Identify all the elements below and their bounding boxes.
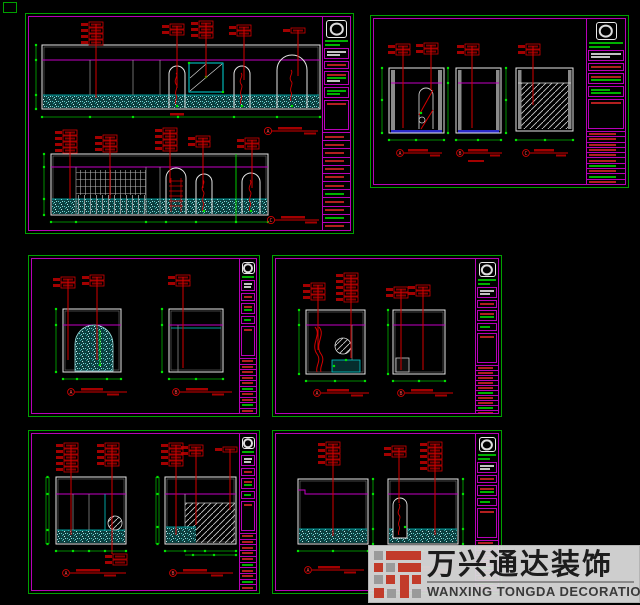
drawing-canvas: A B C [375, 20, 585, 183]
watermark-text: 万兴通达装饰 WANXING TONGDA DECORATION [427, 550, 634, 599]
elevation-drawing-1 [42, 45, 320, 109]
titleblock-field [241, 303, 255, 314]
title-block [586, 19, 625, 184]
wanxing-tongda-logo-icon [374, 551, 421, 598]
titleblock-field [588, 73, 624, 84]
company-logo-icon [479, 437, 496, 452]
drawing-title-tag: C [267, 216, 319, 224]
titleblock-field [324, 100, 349, 130]
titleblock-field [324, 48, 349, 59]
titleblock-field [477, 333, 497, 363]
company-name-chinese: 万兴通达装饰 [427, 550, 634, 581]
elevation-drawing-b [456, 68, 501, 133]
titleblock-field [477, 287, 497, 298]
svg-text:A: A [306, 568, 309, 574]
elevation-drawing-2 [169, 309, 223, 372]
titleblock-rows [240, 533, 256, 590]
titleblock-field [241, 293, 255, 301]
elevation-drawing-1 [56, 477, 126, 544]
titleblock-field [477, 300, 497, 308]
panel-bottom-left: A B [28, 430, 260, 594]
titleblock-rows [476, 365, 498, 413]
titleblock-field [477, 462, 497, 473]
elevation-drawing-1 [63, 309, 121, 372]
company-logo-icon [242, 437, 255, 449]
dimensions-2 [161, 308, 224, 380]
svg-text:B: B [458, 151, 461, 157]
leader-annotations [388, 43, 540, 128]
panel-top-right: A B C [370, 15, 629, 188]
drawing-title-tag: A [314, 389, 369, 397]
titleblock-field [241, 280, 255, 291]
svg-text:A: A [69, 390, 72, 396]
drawing-canvas: A [30, 18, 322, 229]
drawing-title-tag: B [173, 388, 232, 396]
company-logo-icon [479, 262, 496, 277]
drawing-title-tag: B [398, 389, 453, 397]
title-block [322, 17, 350, 230]
svg-text:A: A [64, 571, 67, 577]
title-block [475, 259, 498, 413]
drawing-title-tag: C [523, 149, 568, 157]
titleblock-field [588, 50, 624, 61]
drawing-canvas: A B [277, 260, 473, 412]
elevation-drawing-1 [306, 310, 365, 374]
elevation-drawing-2 [51, 154, 268, 221]
company-logo-icon [242, 262, 255, 274]
leader-annotations-2 [168, 275, 190, 368]
titleblock-field [324, 71, 349, 85]
drawing-title-tag: A [397, 149, 442, 157]
titleblock-field [241, 468, 255, 476]
drawing-title-tag: A [264, 127, 318, 135]
titleblock-field [588, 99, 624, 129]
titleblock-rows [323, 132, 350, 230]
titleblock-field [241, 501, 255, 531]
titleblock-field [241, 326, 255, 356]
panel-middle-left: A B [28, 255, 260, 417]
svg-text:B: B [171, 571, 174, 577]
svg-text:A: A [398, 151, 401, 157]
leader-annotations-1 [318, 442, 340, 536]
drawing-title-tag: B [170, 569, 233, 577]
cad-sheet: A [0, 0, 640, 605]
titleblock-field [477, 310, 497, 321]
titleblock-field [588, 63, 624, 71]
panel-middle-right: A B [272, 255, 502, 417]
panel-top-left: A [25, 13, 354, 234]
title-block [239, 259, 256, 413]
titleblock-field [477, 498, 497, 506]
titleblock-field [241, 455, 255, 466]
titleblock-field [241, 478, 255, 489]
svg-text:C: C [524, 151, 527, 157]
drawing-title-tag: A [63, 569, 126, 577]
titleblock-field [477, 485, 497, 496]
svg-text:B: B [174, 390, 177, 396]
titleblock-field [477, 475, 497, 483]
drawing-canvas: A B [33, 260, 238, 412]
titleblock-field [477, 508, 497, 538]
drawing-canvas: A B [33, 435, 238, 589]
elevation-drawing-c [516, 68, 573, 131]
titleblock-field [241, 491, 255, 499]
drawing-title-tag: A [305, 566, 364, 574]
titleblock-field [324, 87, 349, 98]
titleblock-rows [587, 131, 625, 184]
svg-text:C: C [269, 218, 272, 224]
watermark-banner: 万兴通达装饰 WANXING TONGDA DECORATION [368, 545, 640, 603]
leader-annotations-1 [56, 443, 127, 565]
titleblock-field [241, 316, 255, 324]
company-logo-icon [596, 22, 617, 40]
drawing-title-tag: A [68, 388, 127, 396]
title-block [239, 434, 256, 590]
titleblock-field [588, 86, 624, 97]
svg-text:A: A [315, 391, 318, 397]
elevation-drawing-a [389, 68, 444, 133]
company-name-english: WANXING TONGDA DECORATION [427, 581, 634, 599]
company-logo-icon [326, 20, 347, 38]
drawing-title-tag: B [457, 149, 502, 162]
titleblock-field [477, 323, 497, 331]
svg-text:B: B [399, 391, 402, 397]
svg-text:A: A [266, 129, 269, 135]
titleblock-rows [240, 358, 256, 413]
sheet-corner-mark [3, 2, 17, 13]
titleblock-field [324, 61, 349, 69]
